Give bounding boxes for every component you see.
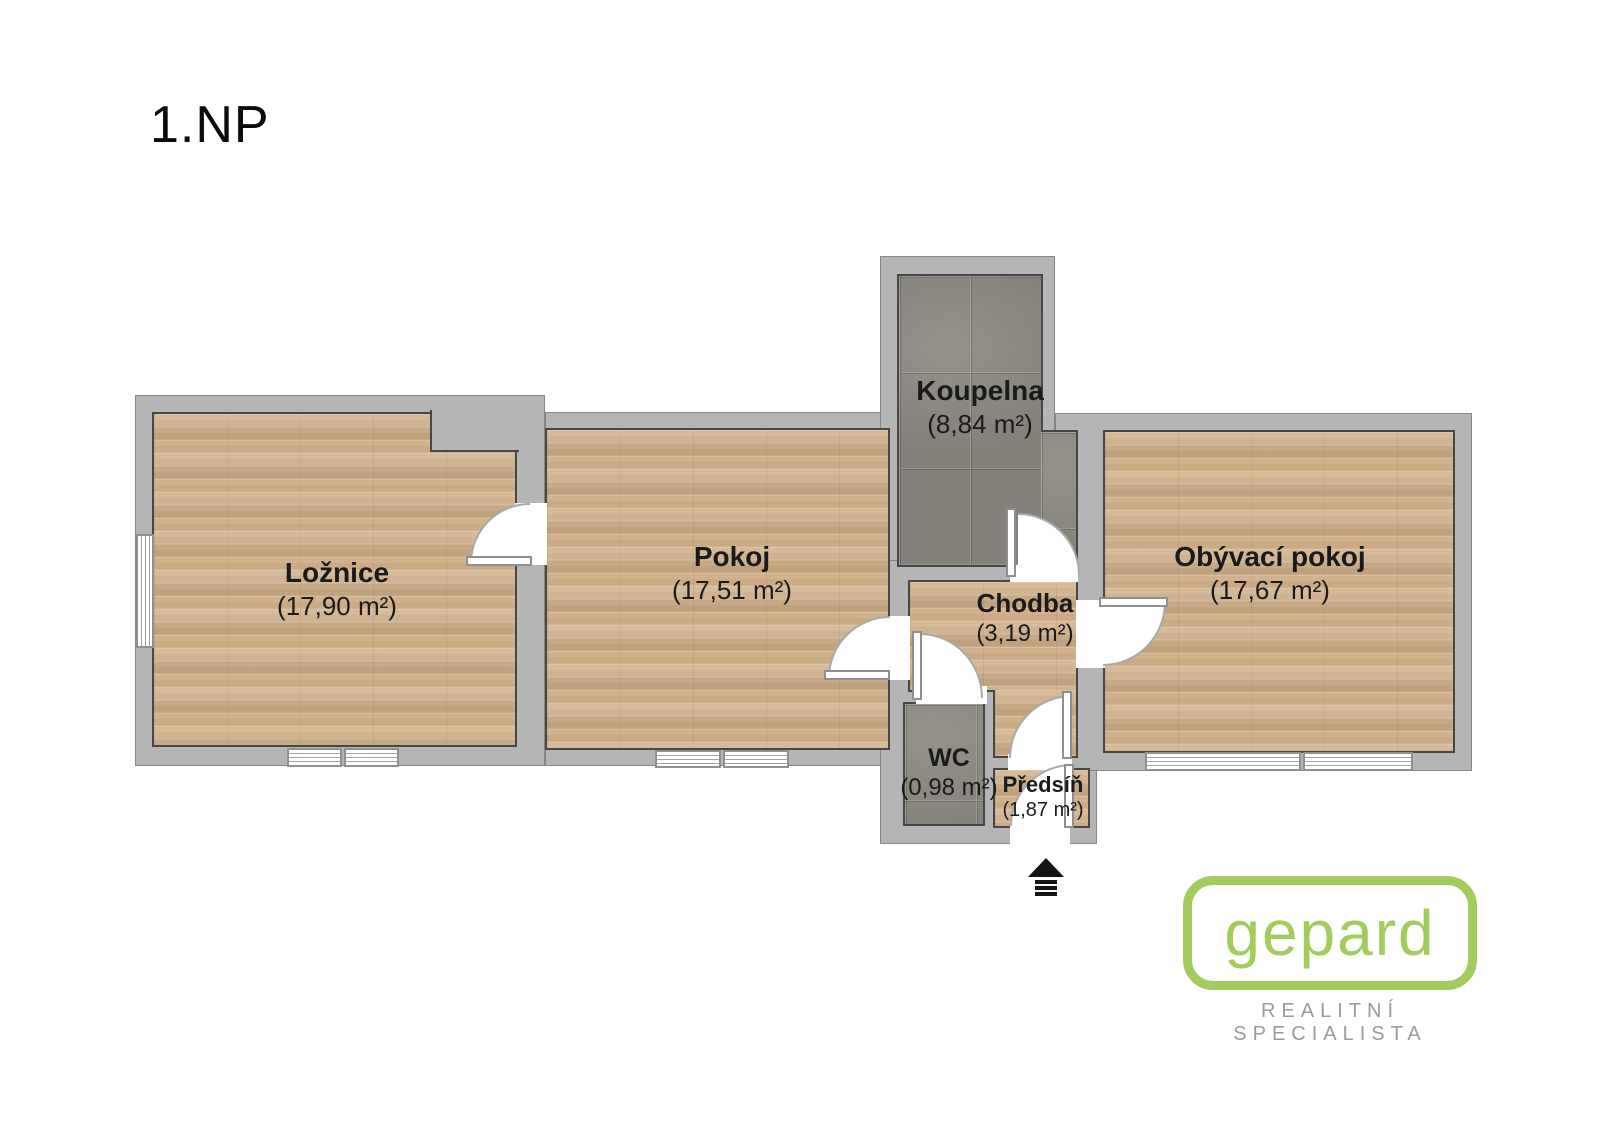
window-pokoj-bottom-1 <box>655 750 721 768</box>
door-pokoj-leaf <box>824 670 890 680</box>
room-koupelna-name: Koupelna <box>825 374 1135 408</box>
room-pokoj-name: Pokoj <box>582 540 882 574</box>
gepard-logo: gepard <box>1183 876 1477 990</box>
room-loznice-area: (17,90 m²) <box>187 590 487 623</box>
room-pokoj-label: Pokoj (17,51 m²) <box>582 540 882 607</box>
room-koupelna-label: Koupelna (8,84 m²) <box>825 374 1135 441</box>
room-wc-name: WC <box>799 744 1099 773</box>
room-predsin-label: Předsíň (1,87 m²) <box>893 772 1193 823</box>
window-pokoj-bottom-2 <box>723 750 789 768</box>
entrance-arrow-bars <box>1035 880 1057 896</box>
window-loznice-bottom-2 <box>344 748 399 767</box>
room-pokoj-area: (17,51 m²) <box>582 574 882 607</box>
room-predsin-name: Předsíň <box>893 772 1193 798</box>
floor-title: 1.NP <box>150 95 270 155</box>
window-loznice-left <box>136 534 154 648</box>
floorplan-canvas: 1.NP Ložnice (17,90 m² <box>0 0 1600 1131</box>
room-koupelna-area: (8,84 m²) <box>825 408 1135 441</box>
gepard-logo-wordmark: gepard <box>1224 901 1435 965</box>
room-obyvaci-pokoj-name: Obývací pokoj <box>1115 540 1425 574</box>
loznice-wall-notch <box>430 410 519 452</box>
room-chodba-area: (3,19 m²) <box>875 619 1175 649</box>
room-obyvaci-pokoj-area: (17,67 m²) <box>1115 574 1425 607</box>
window-obyvaci-bottom-1 <box>1145 752 1301 771</box>
window-loznice-bottom-1 <box>287 748 342 767</box>
door-koupelna-leaf <box>1006 508 1016 577</box>
room-loznice-name: Ložnice <box>187 556 487 590</box>
room-obyvaci-pokoj-label: Obývací pokoj (17,67 m²) <box>1115 540 1425 607</box>
entrance-arrow-icon <box>1028 858 1064 898</box>
entrance-arrow-head <box>1028 858 1064 877</box>
room-predsin-area: (1,87 m²) <box>893 798 1193 823</box>
room-loznice-label: Ložnice (17,90 m²) <box>187 556 487 623</box>
gepard-logo-tagline: REALITNÍ SPECIALISTA <box>1173 1000 1487 1046</box>
window-obyvaci-bottom-2 <box>1303 752 1413 771</box>
